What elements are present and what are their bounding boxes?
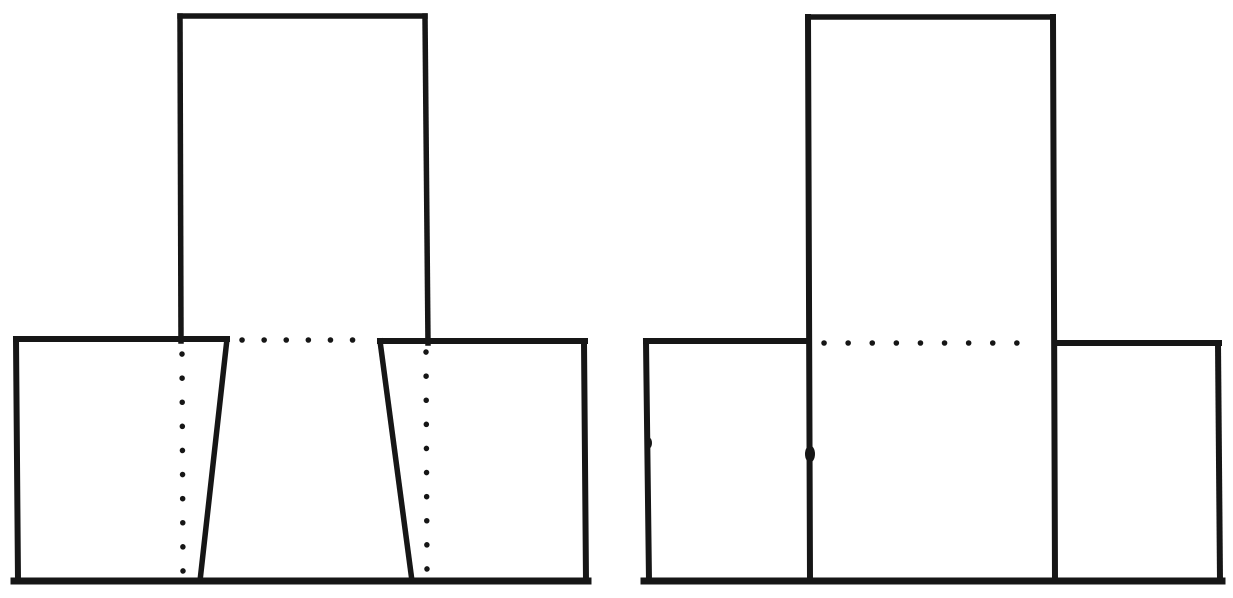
drawing-page	[0, 0, 1233, 598]
hidden-line-segment	[182, 354, 183, 572]
outline-segment	[1053, 17, 1055, 581]
hidden-line-segment	[426, 352, 427, 574]
outline-segment	[584, 342, 586, 581]
ink-blob	[805, 446, 815, 463]
outline-segment	[646, 341, 649, 581]
outline-segment	[16, 339, 18, 581]
outline-segment	[425, 16, 428, 343]
outline-segment	[1218, 343, 1220, 581]
outline-segment	[808, 17, 810, 581]
outline-segment	[380, 341, 412, 581]
ink-blob	[646, 438, 652, 449]
outline-segment	[180, 16, 181, 341]
technical-drawing-canvas	[0, 0, 1233, 598]
figure-right-straight-tee-view	[644, 17, 1222, 581]
outline-segment	[200, 339, 227, 581]
figure-left-tapered-tee-view	[14, 16, 588, 581]
